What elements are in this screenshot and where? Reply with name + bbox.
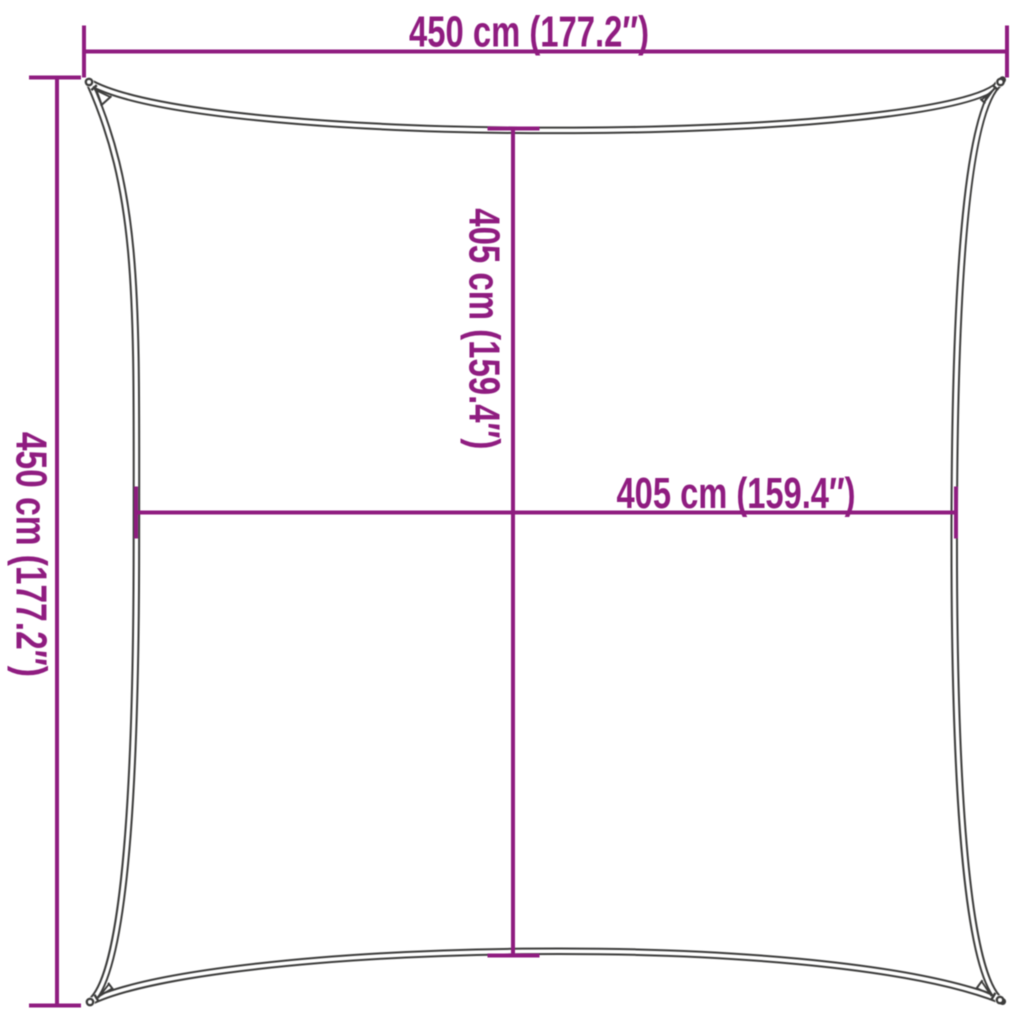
svg-text:405 cm (159.4″): 405 cm (159.4″) xyxy=(617,470,856,518)
svg-text:450 cm (177.2″): 450 cm (177.2″) xyxy=(7,432,55,677)
svg-text:450 cm (177.2″): 450 cm (177.2″) xyxy=(409,9,649,57)
svg-text:405 cm (159.4″): 405 cm (159.4″) xyxy=(460,208,508,449)
